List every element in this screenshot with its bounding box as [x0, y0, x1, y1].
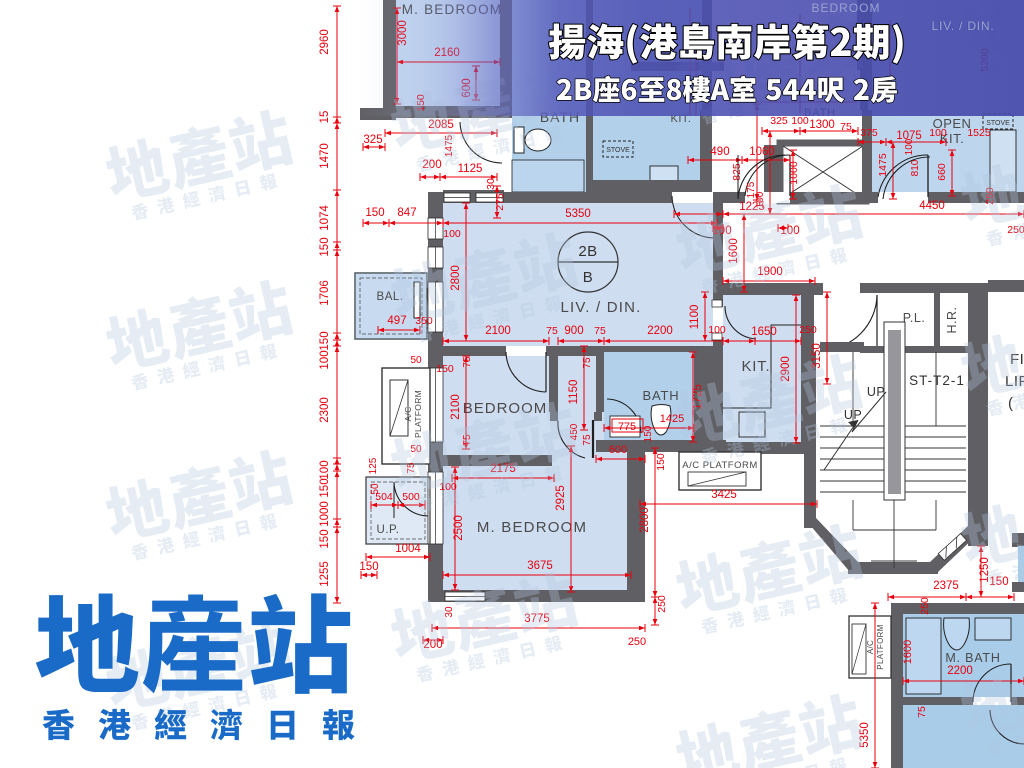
svg-text:100: 100 — [319, 460, 331, 479]
svg-text:2375: 2375 — [933, 580, 959, 592]
svg-text:150: 150 — [365, 207, 384, 219]
svg-text:50: 50 — [370, 483, 381, 495]
svg-text:2200: 2200 — [947, 665, 973, 677]
svg-text:LIV. / DIN.: LIV. / DIN. — [560, 299, 641, 316]
svg-text:A/C: A/C — [403, 406, 413, 421]
svg-text:1706: 1706 — [319, 280, 331, 306]
svg-text:BEDROOM: BEDROOM — [463, 400, 548, 417]
svg-text:150: 150 — [319, 331, 331, 350]
svg-text:1000: 1000 — [319, 501, 331, 527]
svg-text:U.P.: U.P. — [377, 524, 400, 536]
svg-text:A/C: A/C — [866, 640, 875, 654]
svg-text:4450: 4450 — [919, 200, 945, 212]
svg-text:325: 325 — [770, 115, 788, 127]
svg-text:1125: 1125 — [458, 163, 483, 175]
svg-text:150: 150 — [319, 478, 331, 497]
svg-text:2B: 2B — [578, 243, 597, 260]
svg-text:1000: 1000 — [788, 161, 800, 185]
svg-text:1425: 1425 — [660, 413, 684, 425]
svg-text:1255: 1255 — [319, 561, 331, 587]
svg-text:100: 100 — [904, 138, 915, 155]
svg-text:375: 375 — [860, 127, 878, 139]
svg-text:275: 275 — [494, 193, 506, 211]
svg-text:STOVE: STOVE — [606, 147, 630, 154]
svg-text:100: 100 — [929, 127, 947, 139]
svg-text:1074: 1074 — [319, 205, 331, 231]
svg-text:250: 250 — [799, 324, 817, 336]
svg-text:100: 100 — [791, 115, 809, 127]
svg-text:250: 250 — [656, 595, 668, 613]
svg-text:STOVE: STOVE — [986, 120, 1010, 127]
svg-text:900: 900 — [564, 325, 583, 337]
svg-text:825: 825 — [731, 163, 743, 181]
svg-text:150: 150 — [655, 453, 667, 471]
svg-text:325: 325 — [363, 134, 382, 146]
svg-text:ST-T2-1: ST-T2-1 — [909, 373, 965, 388]
svg-text:(: ( — [1008, 395, 1014, 412]
svg-text:125: 125 — [368, 457, 379, 474]
svg-text:BEDROOM: BEDROOM — [811, 1, 880, 15]
svg-text:2800: 2800 — [639, 507, 651, 533]
svg-text:150: 150 — [436, 363, 454, 375]
svg-text:5350: 5350 — [565, 208, 591, 220]
svg-text:250: 250 — [628, 636, 646, 648]
svg-text:2925: 2925 — [555, 485, 567, 511]
svg-text:1475: 1475 — [877, 153, 889, 177]
svg-text:250: 250 — [919, 597, 931, 615]
svg-text:150: 150 — [319, 529, 331, 548]
svg-text:100: 100 — [443, 228, 461, 240]
svg-text:75: 75 — [594, 325, 606, 337]
svg-text:75: 75 — [582, 357, 593, 369]
svg-text:1150: 1150 — [568, 380, 580, 405]
svg-text:H.R.: H.R. — [945, 307, 959, 334]
svg-text:30: 30 — [444, 606, 455, 618]
svg-text:150: 150 — [643, 425, 654, 442]
svg-text:600: 600 — [609, 444, 627, 456]
svg-text:A/C PLATFORM: A/C PLATFORM — [682, 460, 758, 471]
svg-text:75: 75 — [582, 434, 593, 446]
svg-text:847: 847 — [397, 207, 416, 219]
svg-text:75: 75 — [840, 121, 852, 133]
svg-text:BATH: BATH — [643, 388, 680, 403]
svg-text:75: 75 — [462, 356, 473, 368]
svg-text:2500: 2500 — [453, 515, 465, 541]
svg-text:PLATFORM: PLATFORM — [876, 624, 885, 669]
svg-text:2300: 2300 — [319, 397, 331, 423]
svg-text:3425: 3425 — [711, 489, 737, 501]
svg-text:P.L.: P.L. — [903, 311, 926, 325]
svg-text:1004: 1004 — [395, 543, 421, 555]
svg-text:497: 497 — [387, 315, 406, 327]
svg-text:2960: 2960 — [319, 29, 331, 55]
svg-text:1300: 1300 — [809, 119, 835, 131]
svg-text:LIV. / DIN.: LIV. / DIN. — [931, 19, 994, 33]
svg-text:150: 150 — [359, 561, 378, 573]
svg-text:PLATFORM: PLATFORM — [413, 390, 423, 438]
svg-text:3675: 3675 — [527, 560, 553, 572]
svg-text:2200: 2200 — [647, 325, 673, 337]
svg-text:B: B — [583, 269, 594, 286]
svg-text:100: 100 — [708, 324, 726, 336]
svg-text:15: 15 — [319, 111, 331, 124]
svg-text:KIT.: KIT. — [741, 358, 770, 375]
svg-text:2100: 2100 — [450, 394, 462, 420]
svg-text:100: 100 — [319, 350, 331, 369]
svg-text:1060: 1060 — [749, 146, 775, 158]
svg-text:810: 810 — [910, 159, 921, 176]
svg-text:660: 660 — [936, 163, 948, 181]
svg-text:775: 775 — [618, 421, 636, 433]
svg-text:M. BATH: M. BATH — [945, 651, 1000, 665]
svg-text:1650: 1650 — [751, 326, 777, 338]
svg-text:1600: 1600 — [902, 640, 914, 664]
svg-text:50: 50 — [410, 355, 422, 366]
svg-text:150: 150 — [319, 237, 331, 256]
svg-text:75: 75 — [546, 325, 558, 337]
svg-text:1525: 1525 — [967, 127, 991, 139]
svg-text:1100: 1100 — [689, 305, 701, 330]
svg-text:2100: 2100 — [485, 325, 511, 337]
svg-text:490: 490 — [710, 146, 729, 158]
svg-text:1470: 1470 — [319, 143, 331, 169]
svg-text:30: 30 — [485, 178, 497, 190]
svg-text:75: 75 — [916, 706, 928, 718]
